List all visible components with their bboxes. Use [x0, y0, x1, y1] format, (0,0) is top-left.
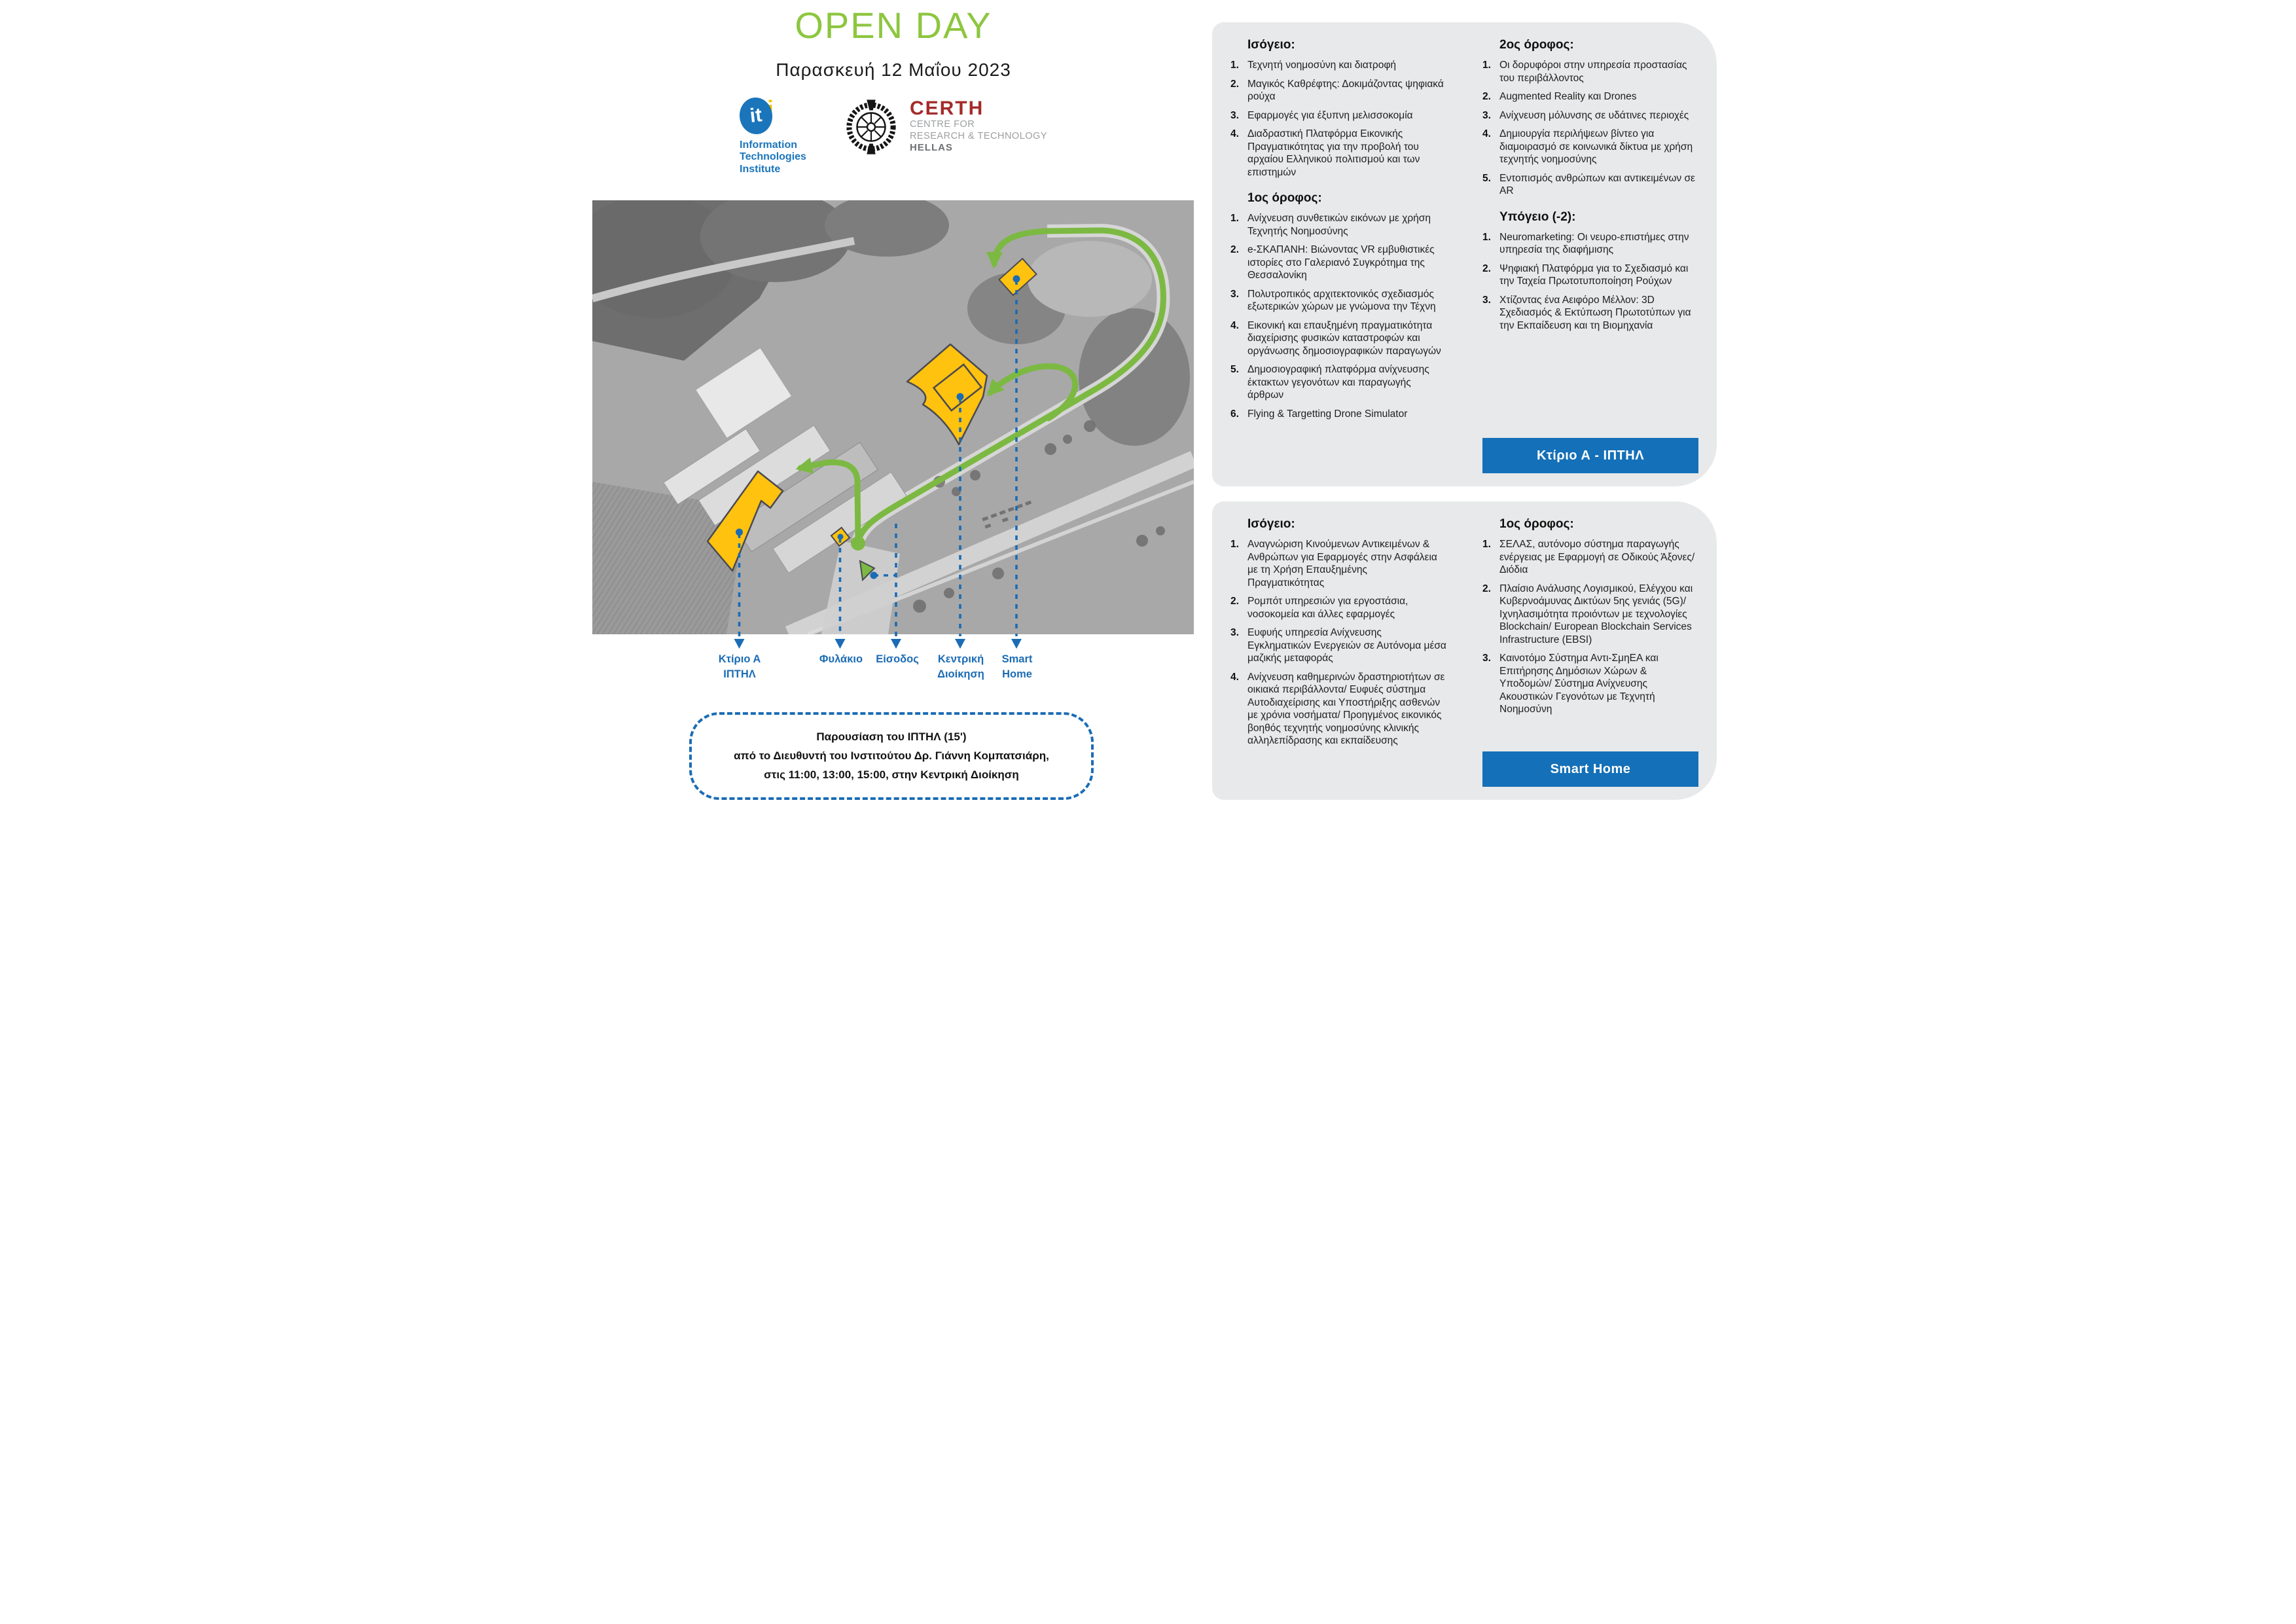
map-label-entrance: Είσοδος	[876, 652, 919, 667]
certh-line: CENTRE FOR	[910, 118, 1047, 130]
smart-home-column-2: 1ος όροφος: 1.ΣΕΛΑΣ, αυτόνομο σύστημα πα…	[1482, 516, 1698, 787]
list-item: 4.Εικονική και επαυξημένη πραγματικότητα…	[1230, 319, 1446, 358]
list-item: 3.Πολυτροπικός αρχιτεκτονικός σχεδιασμός…	[1230, 288, 1446, 314]
list-item: 3.Καινοτόμο Σύστημα Αντι-ΣμηΕΑ και Επιτή…	[1482, 652, 1698, 716]
section-heading: 2ος όροφος:	[1499, 38, 1698, 52]
smart-home-button[interactable]: Smart Home	[1482, 751, 1698, 787]
note-line: Παρουσίαση του ΙΠΤΗΛ (15')	[816, 731, 966, 744]
map-label-line: Smart	[1002, 652, 1033, 667]
list-item: 1.Τεχνητή νοημοσύνη και διατροφή	[1230, 59, 1446, 72]
map-label-line: Διοίκηση	[937, 667, 984, 682]
certh-line: RESEARCH & TECHNOLOGY	[910, 130, 1047, 142]
list-item: 3.Χτίζοντας ένα Αειφόρο Μέλλον: 3D Σχεδι…	[1482, 294, 1698, 333]
note-line: στις 11:00, 13:00, 15:00, στην Κεντρική …	[764, 768, 1019, 782]
list-item: 2.e-ΣΚΑΠΑΝΗ: Βιώνοντας VR εμβυθιστικές ι…	[1230, 244, 1446, 282]
list-item: 3.Ανίχνευση μόλυνσης σε υδάτινες περιοχέ…	[1482, 109, 1698, 122]
list-item: 2.Πλαίσιο Ανάλυσης Λογισμικού, Ελέγχου κ…	[1482, 583, 1698, 647]
section-heading: Ισόγειο:	[1247, 517, 1446, 532]
note-line: από το Διευθυντή του Ινστιτούτου Δρ. Γιά…	[734, 749, 1049, 763]
map-label-ktirio-a: Κτίριο Α ΙΠΤΗΛ	[719, 652, 761, 682]
building-a-column-2: 2ος όροφος: 1.Οι δορυφόροι στην υπηρεσία…	[1482, 37, 1698, 473]
map-label-line: Είσοδος	[876, 652, 919, 667]
iti-line: Institute	[740, 164, 806, 175]
building-a-column-1: Ισόγειο: 1.Τεχνητή νοημοσύνη και διατροφ…	[1230, 37, 1446, 473]
route-start-dot	[851, 536, 865, 550]
iti-line: Information	[740, 139, 806, 151]
iti-mark-it: it	[749, 104, 763, 128]
label-arrow-icons	[734, 639, 1022, 649]
list-item: 5.Εντοπισμός ανθρώπων και αντικειμένων σ…	[1482, 172, 1698, 198]
list-item: 3.Εφαρμογές για έξυπνη μελισσοκομία	[1230, 109, 1446, 122]
event-date: Παρασκευή 12 Μαΐου 2023	[592, 60, 1194, 81]
section-heading: 1ος όροφος:	[1499, 517, 1698, 532]
list-item: 1.ΣΕΛΑΣ, αυτόνομο σύστημα παραγωγής ενέρ…	[1482, 538, 1698, 577]
section-heading: 1ος όροφος:	[1247, 191, 1446, 206]
open-day-flyer: OPEN DAY Παρασκευή 12 Μαΐου 2023 it i In…	[574, 0, 1722, 812]
logos-row: it i Information Technologies Institute	[592, 98, 1194, 175]
list-item: 4.Δημιουργία περιλήψεων βίντεο για διαμο…	[1482, 128, 1698, 166]
smart-home-column-1: Ισόγειο: 1.Αναγνώριση Κινούμενων Αντικει…	[1230, 516, 1446, 787]
list-item: 1.Neuromarketing: Οι νευρο-επιστήμες στη…	[1482, 231, 1698, 257]
header: OPEN DAY Παρασκευή 12 Μαΐου 2023 it i In…	[592, 7, 1194, 175]
section-heading: Ισόγειο:	[1247, 38, 1446, 52]
list-item: 2.Μαγικός Καθρέφτης: Δοκιμάζοντας ψηφιακ…	[1230, 78, 1446, 103]
map-label-central-admin: Κεντρική Διοίκηση	[937, 652, 984, 682]
section-heading: Υπόγειο (-2):	[1499, 210, 1698, 225]
iti-logo-icon: it i	[740, 98, 774, 134]
list-item: 2.Ψηφιακή Πλατφόρμα για το Σχεδιασμό και…	[1482, 262, 1698, 288]
certh-rosette-icon	[843, 99, 899, 155]
building-a-button[interactable]: Κτίριο Α - ΙΠΤΗΛ	[1482, 438, 1698, 473]
map-label-line: Φυλάκιο	[819, 652, 863, 667]
list-item: 4.Διαδραστική Πλατφόρμα Εικονικής Πραγμα…	[1230, 128, 1446, 179]
list-item: 1.Ανίχνευση συνθετικών εικόνων με χρήση …	[1230, 212, 1446, 238]
page-title: OPEN DAY	[592, 7, 1194, 45]
iti-logo: it i Information Technologies Institute	[740, 98, 806, 175]
map-label-gatehouse: Φυλάκιο	[819, 652, 863, 667]
list-item: 2.Ρομπότ υπηρεσιών για εργοστάσια, νοσοκ…	[1230, 595, 1446, 621]
list-item: 4.Ανίχνευση καθημερινών δραστηριοτήτων σ…	[1230, 671, 1446, 748]
aerial-photo	[592, 200, 1194, 685]
list-item: 1.Αναγνώριση Κινούμενων Αντικειμένων & Α…	[1230, 538, 1446, 589]
iti-line: Technologies	[740, 151, 806, 163]
certh-acronym: CERTH	[910, 99, 1047, 118]
map-label-line: ΙΠΤΗΛ	[719, 667, 761, 682]
certh-logo-text: CERTH CENTRE FOR RESEARCH & TECHNOLOGY H…	[910, 99, 1047, 154]
list-item: 5.Δημοσιογραφική πλατφόρμα ανίχνευσης έκ…	[1230, 363, 1446, 402]
smart-home-panel: Ισόγειο: 1.Αναγνώριση Κινούμενων Αντικει…	[1212, 501, 1717, 800]
map-label-smart-home: Smart Home	[1002, 652, 1033, 682]
map-label-line: Home	[1002, 667, 1033, 682]
map-label-line: Κεντρική	[937, 652, 984, 667]
campus-map: Κτίριο Α ΙΠΤΗΛ Φυλάκιο Είσοδος Κεντρική …	[592, 200, 1194, 704]
list-item: 3.Ευφυής υπηρεσία Ανίχνευσης Εγκληματικώ…	[1230, 626, 1446, 665]
list-item: 2.Augmented Reality και Drones	[1482, 90, 1698, 103]
iti-logo-text: Information Technologies Institute	[740, 139, 806, 175]
certh-logo: CERTH CENTRE FOR RESEARCH & TECHNOLOGY H…	[843, 99, 1047, 155]
certh-hellas: HELLAS	[910, 142, 1047, 154]
photo-backdrop	[592, 200, 1194, 634]
map-label-line: Κτίριο Α	[719, 652, 761, 667]
building-a-panel: Ισόγειο: 1.Τεχνητή νοημοσύνη και διατροφ…	[1212, 22, 1717, 486]
list-item: 1.Οι δορυφόροι στην υπηρεσία προστασίας …	[1482, 59, 1698, 84]
presentation-note: Παρουσίαση του ΙΠΤΗΛ (15') από το Διευθυ…	[689, 712, 1094, 800]
list-item: 6.Flying & Targetting Drone Simulator	[1230, 408, 1446, 421]
